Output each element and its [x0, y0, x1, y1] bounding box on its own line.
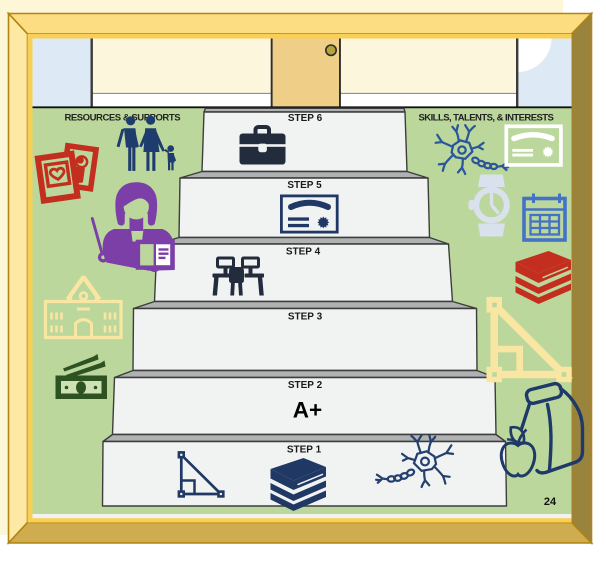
svg-text:STEP 1: STEP 1 [287, 445, 322, 456]
svg-text:STEP 2: STEP 2 [288, 380, 323, 391]
svg-text:STEP 4: STEP 4 [286, 247, 321, 258]
svg-text:STEP 6: STEP 6 [288, 113, 323, 124]
svg-text:RESOURCES & SUPPORTS: RESOURCES & SUPPORTS [65, 113, 181, 124]
svg-text:SKILLS, TALENTS, & INTERESTS: SKILLS, TALENTS, & INTERESTS [419, 113, 554, 124]
svg-text:24: 24 [544, 496, 557, 508]
svg-text:STEP 3: STEP 3 [288, 312, 323, 323]
svg-text:A+: A+ [293, 398, 322, 423]
svg-text:STEP 5: STEP 5 [287, 180, 322, 191]
